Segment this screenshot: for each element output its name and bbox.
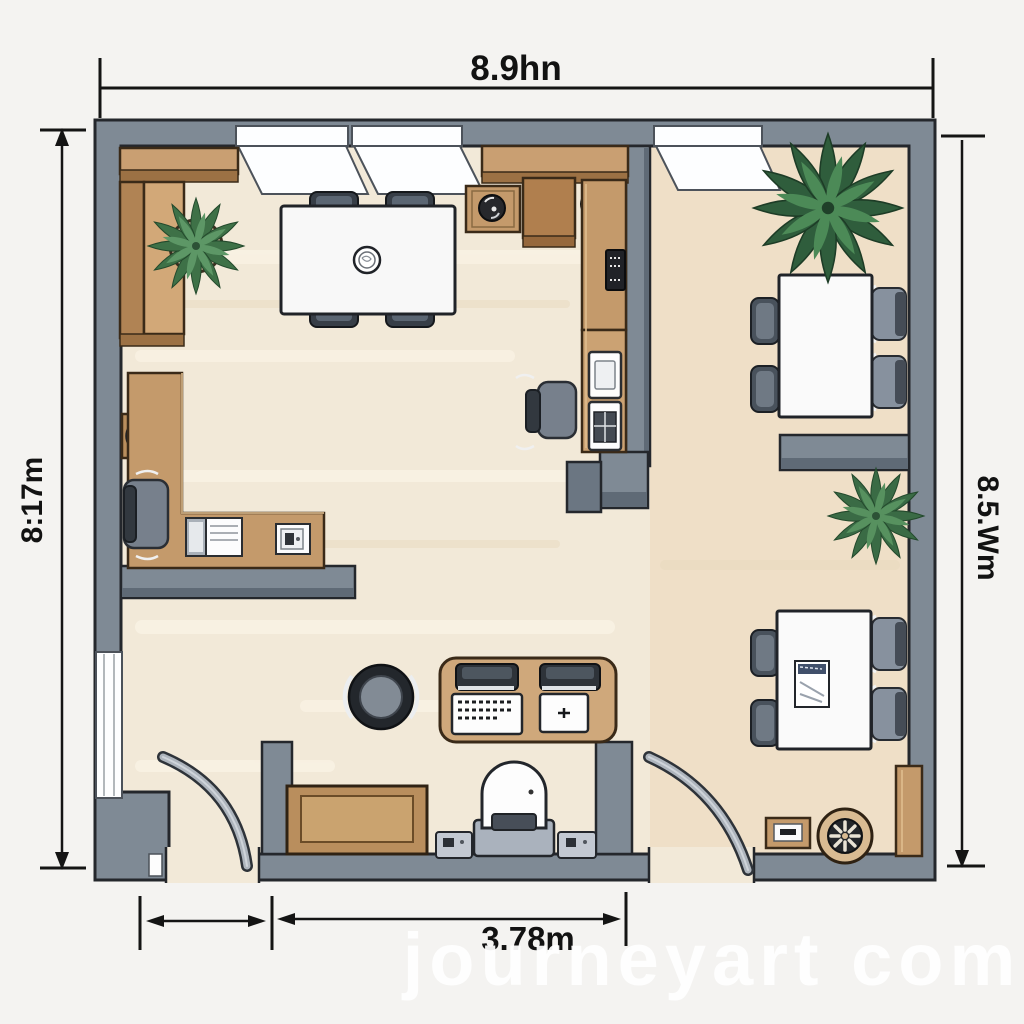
corner-niche — [149, 854, 162, 876]
partition-left-face — [122, 588, 354, 597]
side-chair — [751, 366, 779, 412]
partition-foot-flap — [567, 462, 601, 512]
storage-shelf-top-left — [120, 148, 238, 182]
reception-zone — [345, 658, 616, 742]
floor-device-left — [436, 832, 472, 858]
partition-right-stub-face — [781, 458, 908, 469]
partition-bottom-right — [596, 742, 632, 854]
partition-shade — [644, 148, 649, 464]
window-left — [96, 652, 122, 798]
office-chair-desk — [124, 471, 168, 559]
side-chair — [751, 298, 779, 344]
partition-foot-face — [601, 492, 647, 507]
side-chair — [751, 630, 779, 676]
radio-device — [766, 818, 810, 848]
watermark: journeyart com — [401, 918, 1022, 1001]
window-top-1 — [236, 126, 368, 194]
floor-plan-drawing: 8.9hn 8:17m 8.5.Wm 3.78m journeyart com — [0, 0, 1024, 1024]
desk-device — [276, 524, 310, 554]
printer — [589, 352, 621, 398]
floor-device-right — [558, 832, 596, 858]
laptop-closed — [456, 664, 518, 690]
floor-plan-canvas: 8.9hn 8:17m 8.5.Wm 3.78m journeyart com — [0, 0, 1024, 1024]
speaker-knob-icon — [479, 195, 505, 221]
laptop-closed — [540, 664, 600, 690]
wooden-bench — [287, 786, 427, 854]
table-bowl — [354, 247, 380, 273]
coffee-machine — [606, 250, 625, 290]
table-fan — [818, 809, 872, 863]
storage-cabinet — [896, 766, 922, 856]
dimension-top-label: 8.9hn — [470, 49, 561, 88]
laptop — [186, 518, 242, 556]
window-top-3 — [654, 126, 780, 190]
dimension-left-label: 8:17m — [16, 457, 49, 544]
mouse-pad — [540, 694, 588, 732]
document-paper — [795, 661, 829, 707]
weighing-chair — [474, 762, 554, 856]
meeting-table-top — [779, 275, 872, 417]
keyboard — [452, 694, 522, 734]
wooden-box — [523, 178, 575, 247]
dimension-right-label: 8.5.Wm — [971, 475, 1004, 580]
mini-fridge — [589, 402, 621, 450]
side-chair — [751, 700, 779, 746]
